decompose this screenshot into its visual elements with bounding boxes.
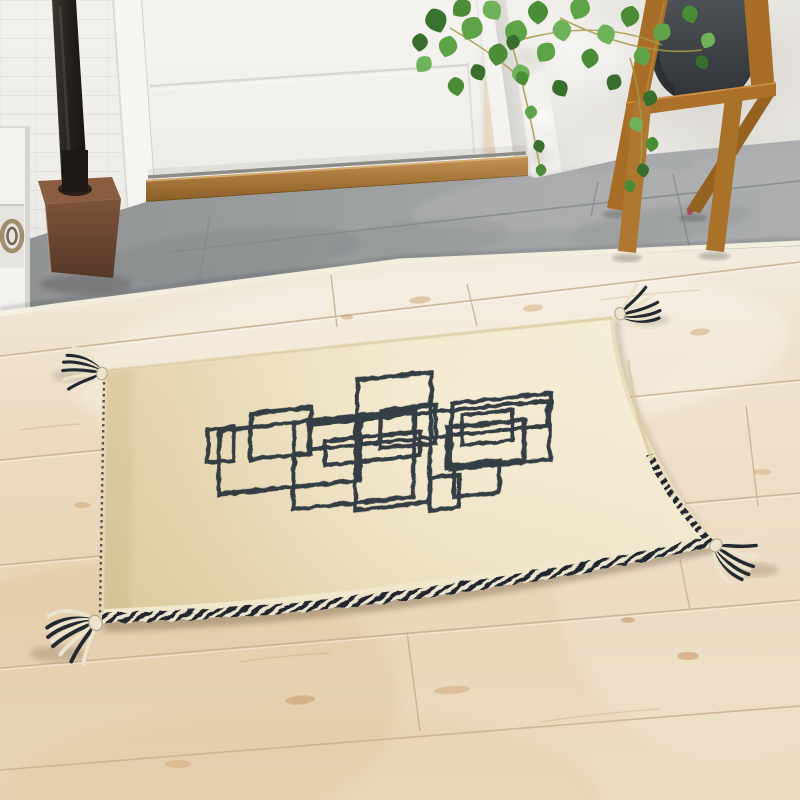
ivy-leaf (551, 18, 573, 43)
ivy-leaf (422, 5, 451, 36)
ivy-leaf (528, 1, 548, 25)
ivy-leaf (549, 76, 572, 100)
ivy-leaf (603, 71, 625, 94)
entryway-photo (0, 0, 800, 800)
ivy-leaf (486, 42, 509, 68)
scene-artwork (0, 0, 800, 800)
ivy-leaf (594, 22, 618, 48)
ivy-leaf (566, 0, 594, 24)
ivy-leaf (532, 38, 560, 67)
ivy-leaf (478, 0, 506, 25)
ivy-leaf (618, 4, 642, 30)
ivy-leaf (436, 34, 460, 60)
ivy-leaf (580, 47, 600, 70)
stand-foot-cap (687, 209, 693, 215)
ivy-leaf (523, 104, 538, 121)
ivy-leaf (456, 12, 487, 45)
shoehorn-base-block (45, 199, 121, 278)
ivy-leaf (468, 61, 489, 84)
ivy-leaf (411, 33, 428, 53)
ivy-leaf (532, 138, 547, 154)
ivy-leaf (446, 76, 466, 98)
